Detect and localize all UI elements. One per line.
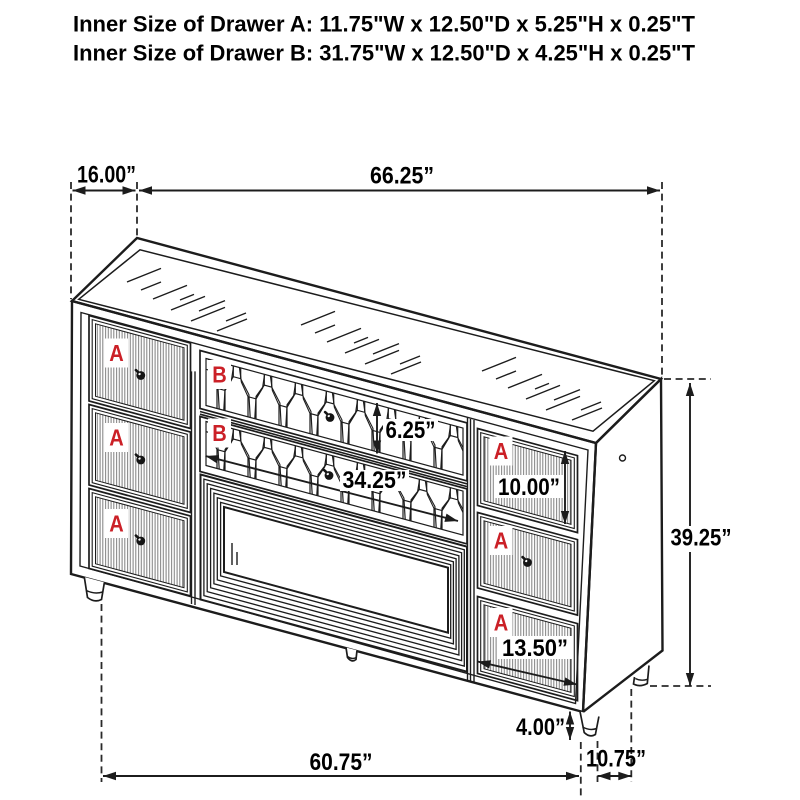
svg-text:B: B — [212, 362, 227, 388]
svg-text:A: A — [109, 425, 124, 451]
svg-text:34.25”: 34.25” — [343, 467, 407, 494]
svg-text:A: A — [109, 340, 124, 366]
svg-text:A: A — [494, 610, 509, 636]
svg-text:Inner Size of Drawer A: 11.75": Inner Size of Drawer A: 11.75"W x 12.50"… — [73, 11, 696, 36]
svg-text:A: A — [494, 528, 509, 554]
svg-text:4.00”: 4.00” — [516, 714, 565, 741]
svg-text:Inner Size of Drawer B: 31.75": Inner Size of Drawer B: 31.75"W x 12.50"… — [73, 41, 696, 66]
svg-text:10.00”: 10.00” — [498, 474, 560, 501]
svg-text:10.75”: 10.75” — [586, 746, 646, 773]
svg-text:16.00”: 16.00” — [77, 162, 136, 189]
svg-text:B: B — [212, 420, 227, 446]
svg-text:6.25”: 6.25” — [386, 417, 436, 444]
svg-text:60.75”: 60.75” — [310, 749, 373, 776]
svg-text:66.25”: 66.25” — [370, 163, 434, 190]
svg-text:A: A — [109, 511, 124, 537]
svg-text:39.25”: 39.25” — [671, 525, 732, 552]
svg-text:A: A — [494, 438, 509, 464]
svg-text:13.50”: 13.50” — [502, 635, 568, 662]
